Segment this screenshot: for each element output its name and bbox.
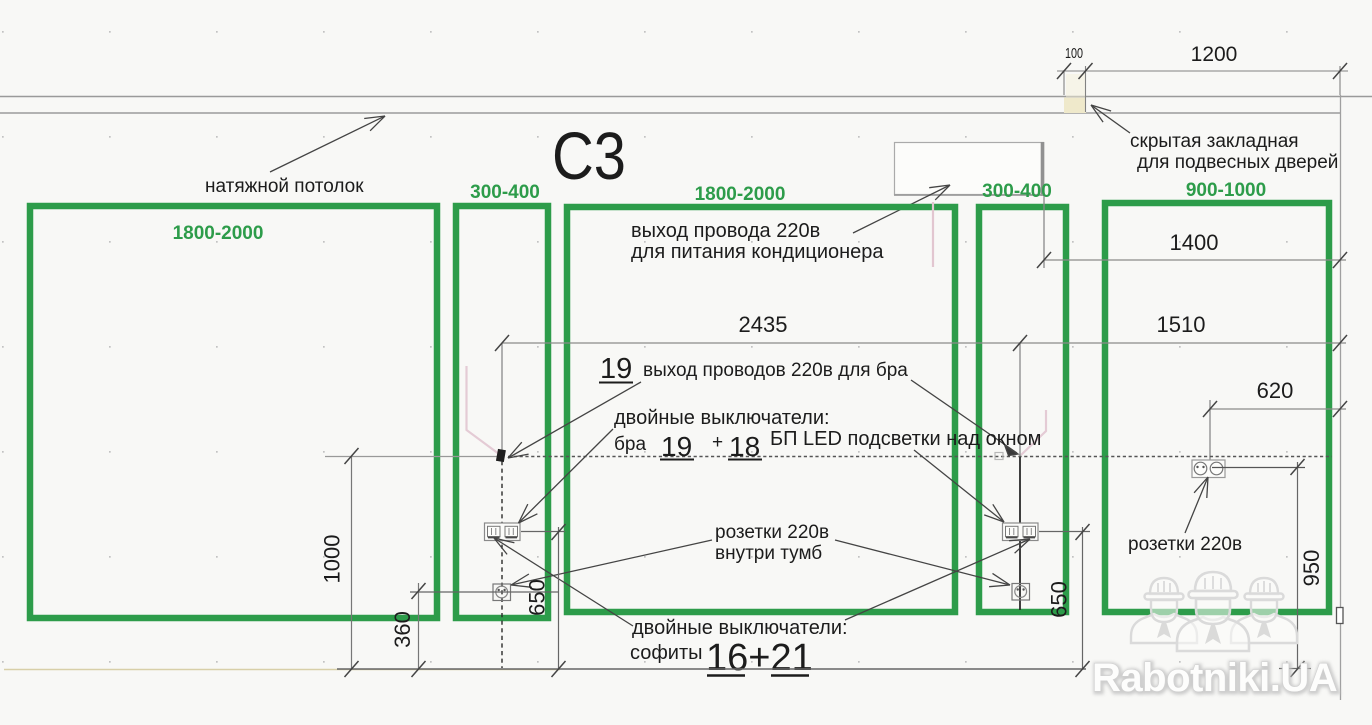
svg-text:натяжной потолок: натяжной потолок — [205, 176, 364, 197]
svg-text:Rabotniki.UA: Rabotniki.UA — [1092, 656, 1337, 700]
svg-text:620: 620 — [1257, 378, 1294, 403]
svg-text:бра: бра — [614, 434, 646, 455]
svg-text:1400: 1400 — [1170, 230, 1219, 255]
svg-text:360: 360 — [390, 611, 415, 648]
svg-text:300-400: 300-400 — [470, 182, 540, 203]
svg-text:+: + — [712, 432, 723, 453]
svg-text:двойные выключатели:: двойные выключатели: — [632, 617, 848, 639]
svg-text:для питания кондиционера: для питания кондиционера — [631, 241, 884, 263]
svg-text:650: 650 — [525, 579, 550, 616]
svg-text:16+21: 16+21 — [706, 637, 813, 679]
svg-text:софиты: софиты — [630, 642, 703, 664]
svg-text:900-1000: 900-1000 — [1186, 180, 1266, 201]
svg-text:19: 19 — [600, 353, 632, 385]
svg-text:2435: 2435 — [739, 312, 788, 337]
svg-text:БП LED подсветки над окном: БП LED подсветки над окном — [770, 428, 1041, 450]
svg-text:для подвесных дверей: для подвесных дверей — [1137, 152, 1338, 173]
svg-text:1200: 1200 — [1191, 43, 1238, 66]
svg-text:1000: 1000 — [320, 535, 345, 584]
svg-text:внутри тумб: внутри тумб — [715, 543, 822, 564]
svg-text:выход проводов 220в для бра: выход проводов 220в для бра — [643, 360, 908, 381]
svg-text:двойные выключатели:: двойные выключатели: — [614, 407, 830, 429]
svg-text:950: 950 — [1299, 550, 1324, 587]
svg-text:1800-2000: 1800-2000 — [173, 223, 264, 244]
svg-text:1510: 1510 — [1157, 312, 1206, 337]
svg-text:розетки 220в: розетки 220в — [1128, 534, 1242, 555]
svg-text:выход провода 220в: выход провода 220в — [631, 220, 820, 242]
svg-text:розетки 220в: розетки 220в — [715, 522, 829, 543]
svg-text:1800-2000: 1800-2000 — [695, 184, 786, 205]
svg-text:18: 18 — [729, 431, 760, 462]
svg-text:650: 650 — [1047, 581, 1072, 618]
svg-text:19: 19 — [661, 431, 692, 462]
svg-text:С3: С3 — [552, 119, 626, 194]
svg-text:скрытая закладная: скрытая закладная — [1130, 131, 1299, 152]
svg-text:100: 100 — [1065, 45, 1083, 62]
svg-text:300-400: 300-400 — [982, 181, 1052, 202]
